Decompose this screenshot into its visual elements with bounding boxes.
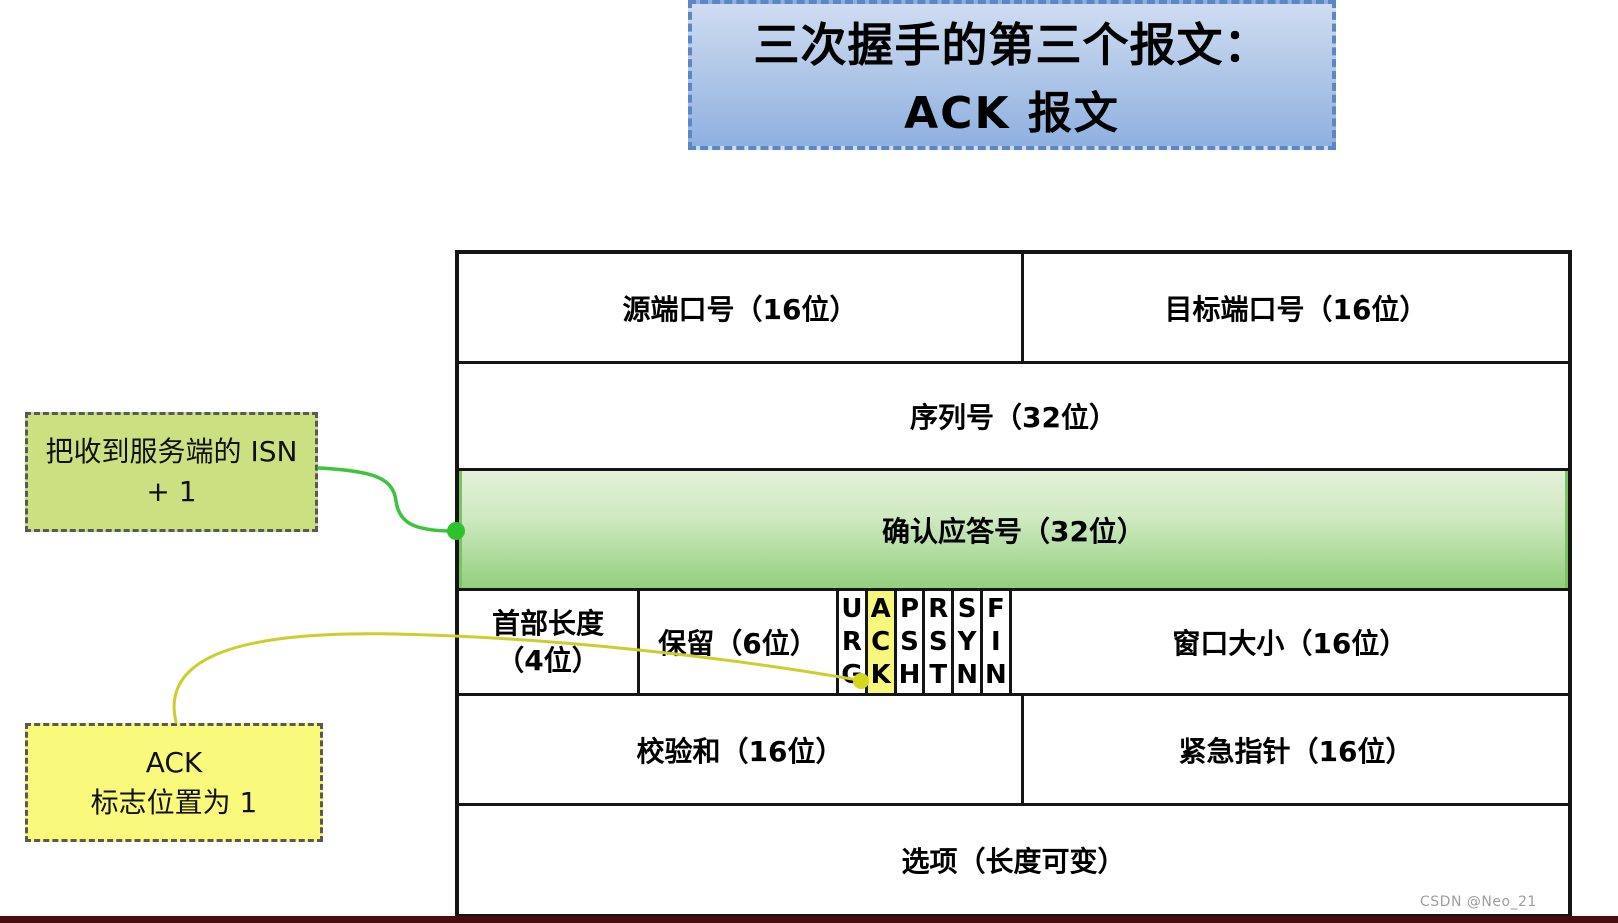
title-box: 三次握手的第三个报文： ACK 报文 <box>688 0 1336 150</box>
title-line1: 三次握手的第三个报文： <box>754 9 1271 75</box>
header-length-line1: 首部长度 <box>492 605 604 642</box>
title-line2: ACK 报文 <box>904 77 1120 141</box>
flag-urg-label: URG <box>839 591 865 692</box>
flag-ack-label: ACK <box>868 591 894 692</box>
row-options: 选项（长度可变） <box>459 806 1568 914</box>
field-options: 选项（长度可变） <box>459 806 1568 914</box>
flag-rst: RST <box>922 591 951 693</box>
ack-note-line1: ACK <box>146 743 203 783</box>
row-checksum: 校验和（16位） 紧急指针（16位） <box>459 696 1568 806</box>
flag-syn: SYN <box>951 591 980 693</box>
row-sequence: 序列号（32位） <box>459 364 1568 471</box>
isn-note-line2: + 1 <box>146 472 196 512</box>
green-connector-line <box>319 468 448 531</box>
field-checksum: 校验和（16位） <box>459 696 1021 803</box>
flag-ack: ACK <box>865 591 894 693</box>
flag-rst-label: RST <box>925 591 951 692</box>
field-header-length: 首部长度 （4位） <box>459 591 637 693</box>
ack-annotation-note: ACK 标志位置为 1 <box>25 723 323 842</box>
diagram-canvas: 三次握手的第三个报文： ACK 报文 把收到服务端的 ISN + 1 ACK 标… <box>0 0 1618 923</box>
field-dest-port: 目标端口号（16位） <box>1021 254 1568 361</box>
bottom-bar <box>0 916 1618 923</box>
flag-psh-label: PSH <box>897 591 923 692</box>
field-urgent-pointer: 紧急指针（16位） <box>1021 696 1568 803</box>
flag-urg: URG <box>836 591 865 693</box>
tcp-header-table: 源端口号（16位） 目标端口号（16位） 序列号（32位） 确认应答号（32位）… <box>455 250 1572 918</box>
field-ack-number: 确认应答号（32位） <box>459 471 1568 588</box>
header-length-line2: （4位） <box>496 642 599 679</box>
isn-note-line1: 把收到服务端的 ISN <box>46 432 298 472</box>
row-ack-number: 确认应答号（32位） <box>459 471 1568 591</box>
flag-syn-label: SYN <box>954 591 980 692</box>
flag-psh: PSH <box>894 591 923 693</box>
flag-fin: FIN <box>980 591 1009 693</box>
row-ports: 源端口号（16位） 目标端口号（16位） <box>459 254 1568 364</box>
row-flags: 首部长度 （4位） 保留（6位） URG ACK PSH RST SYN FIN <box>459 591 1568 696</box>
flag-fin-label: FIN <box>983 591 1009 692</box>
field-window-size: 窗口大小（16位） <box>1009 591 1568 693</box>
field-source-port: 源端口号（16位） <box>459 254 1021 361</box>
field-sequence-number: 序列号（32位） <box>459 364 1568 468</box>
watermark: CSDN @Neo_21 <box>1420 894 1537 910</box>
isn-annotation-note: 把收到服务端的 ISN + 1 <box>25 412 318 532</box>
ack-note-line2: 标志位置为 1 <box>91 783 258 823</box>
field-reserved: 保留（6位） <box>637 591 836 693</box>
